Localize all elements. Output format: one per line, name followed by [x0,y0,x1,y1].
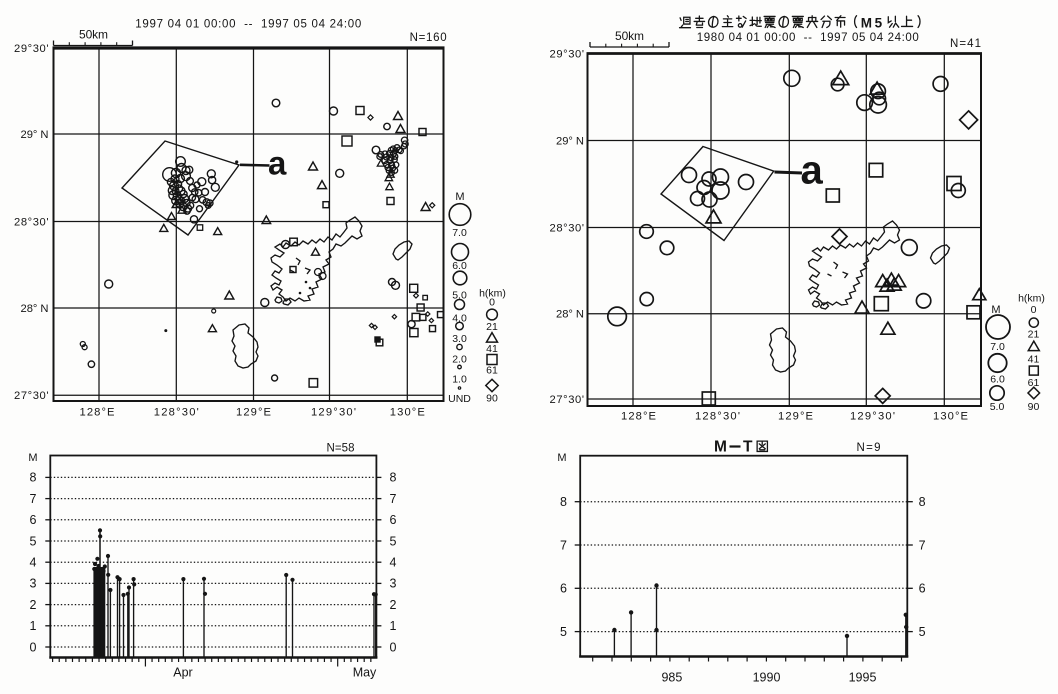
svg-text:T: T [743,439,753,456]
svg-text:28° N: 28° N [21,303,49,315]
svg-text:4: 4 [30,556,37,570]
svg-text:0: 0 [390,640,397,654]
svg-text:0: 0 [489,297,495,309]
svg-text:N=41: N=41 [950,38,981,50]
svg-text:128°E: 128°E [80,407,115,419]
svg-text:a: a [268,145,287,182]
svg-text:0: 0 [30,640,37,654]
svg-text:129°E: 129°E [778,411,813,423]
svg-text:3: 3 [30,577,37,591]
svg-text:5: 5 [30,534,37,548]
svg-text:1990: 1990 [753,671,781,685]
svg-text:28°30': 28°30' [14,216,49,228]
svg-text:5: 5 [919,625,926,639]
svg-text:M: M [455,191,464,203]
svg-text:985: 985 [661,671,682,685]
svg-text:5: 5 [390,534,397,548]
svg-text:90: 90 [1028,401,1040,413]
svg-text:129°30': 129°30' [311,407,356,419]
svg-text:UND: UND [448,393,471,405]
svg-text:128°30': 128°30' [154,407,199,419]
svg-text:130°E: 130°E [390,407,425,419]
svg-text:21: 21 [486,321,498,333]
svg-text:5.0: 5.0 [990,401,1005,413]
svg-text:1: 1 [30,619,37,633]
svg-text:2: 2 [390,598,397,612]
svg-text:Apr: Apr [173,666,192,680]
svg-text:6: 6 [560,582,567,596]
svg-text:27°30': 27°30' [550,394,585,406]
svg-text:29°30': 29°30' [550,48,585,60]
svg-text:6.0: 6.0 [990,374,1005,386]
svg-text:1980 04 01 00:00 -- 1997 05: 1980 04 01 00:00 -- 1997 05 04 24:00 [697,32,919,44]
svg-text:50km: 50km [79,28,108,42]
svg-text:6: 6 [30,513,37,527]
svg-text:8: 8 [30,471,37,485]
svg-text:6.0: 6.0 [452,260,467,272]
svg-text:M: M [28,452,37,464]
svg-text:7: 7 [30,492,37,506]
svg-text:28° N: 28° N [556,309,584,321]
svg-text:6: 6 [919,582,926,596]
svg-text:3: 3 [390,577,397,591]
svg-text:7.0: 7.0 [452,227,467,239]
svg-text:8: 8 [919,495,926,509]
svg-text:129°30': 129°30' [850,411,895,423]
svg-text:129°E: 129°E [236,407,271,419]
svg-text:1997 04 01 00:00 -- 1997 05: 1997 04 01 00:00 -- 1997 05 04 24:00 [135,19,361,31]
svg-text:2.0: 2.0 [452,354,467,366]
svg-text:90: 90 [486,393,498,405]
svg-text:N=160: N=160 [410,32,447,44]
svg-text:6: 6 [390,513,397,527]
svg-text:1995: 1995 [849,671,877,685]
svg-text:5: 5 [560,625,567,639]
svg-text:8: 8 [560,495,567,509]
svg-text:41: 41 [1028,353,1040,365]
svg-text:0: 0 [1031,304,1037,316]
svg-text:May: May [353,666,377,680]
svg-text:M: M [557,452,566,464]
svg-text:4: 4 [390,556,397,570]
svg-text:27°30': 27°30' [14,390,49,402]
svg-text:h(km): h(km) [1018,293,1045,305]
svg-text:61: 61 [486,365,498,377]
svg-text:29° N: 29° N [21,129,49,141]
svg-text:41: 41 [486,343,498,355]
svg-text:7.0: 7.0 [990,341,1005,353]
svg-text:1.0: 1.0 [452,374,467,386]
svg-text:29°30': 29°30' [14,43,49,55]
svg-text:7: 7 [560,538,567,552]
svg-text:N=9: N=9 [857,442,881,454]
svg-text:M 5: M 5 [861,15,883,30]
svg-text:128°30': 128°30' [695,411,740,423]
svg-text:N=58: N=58 [327,443,355,455]
svg-text:7: 7 [919,538,926,552]
svg-text:2: 2 [30,598,37,612]
svg-text:130°E: 130°E [933,411,968,423]
svg-text:M: M [714,439,727,456]
svg-text:29° N: 29° N [556,135,584,147]
svg-text:7: 7 [390,492,397,506]
svg-text:1: 1 [390,619,397,633]
svg-text:50km: 50km [615,29,644,43]
svg-text:28°30': 28°30' [550,222,585,234]
svg-text:8: 8 [390,471,397,485]
svg-text:21: 21 [1028,329,1040,341]
svg-text:a: a [801,149,824,193]
svg-text:128°E: 128°E [621,411,656,423]
svg-text:3.0: 3.0 [452,333,467,345]
